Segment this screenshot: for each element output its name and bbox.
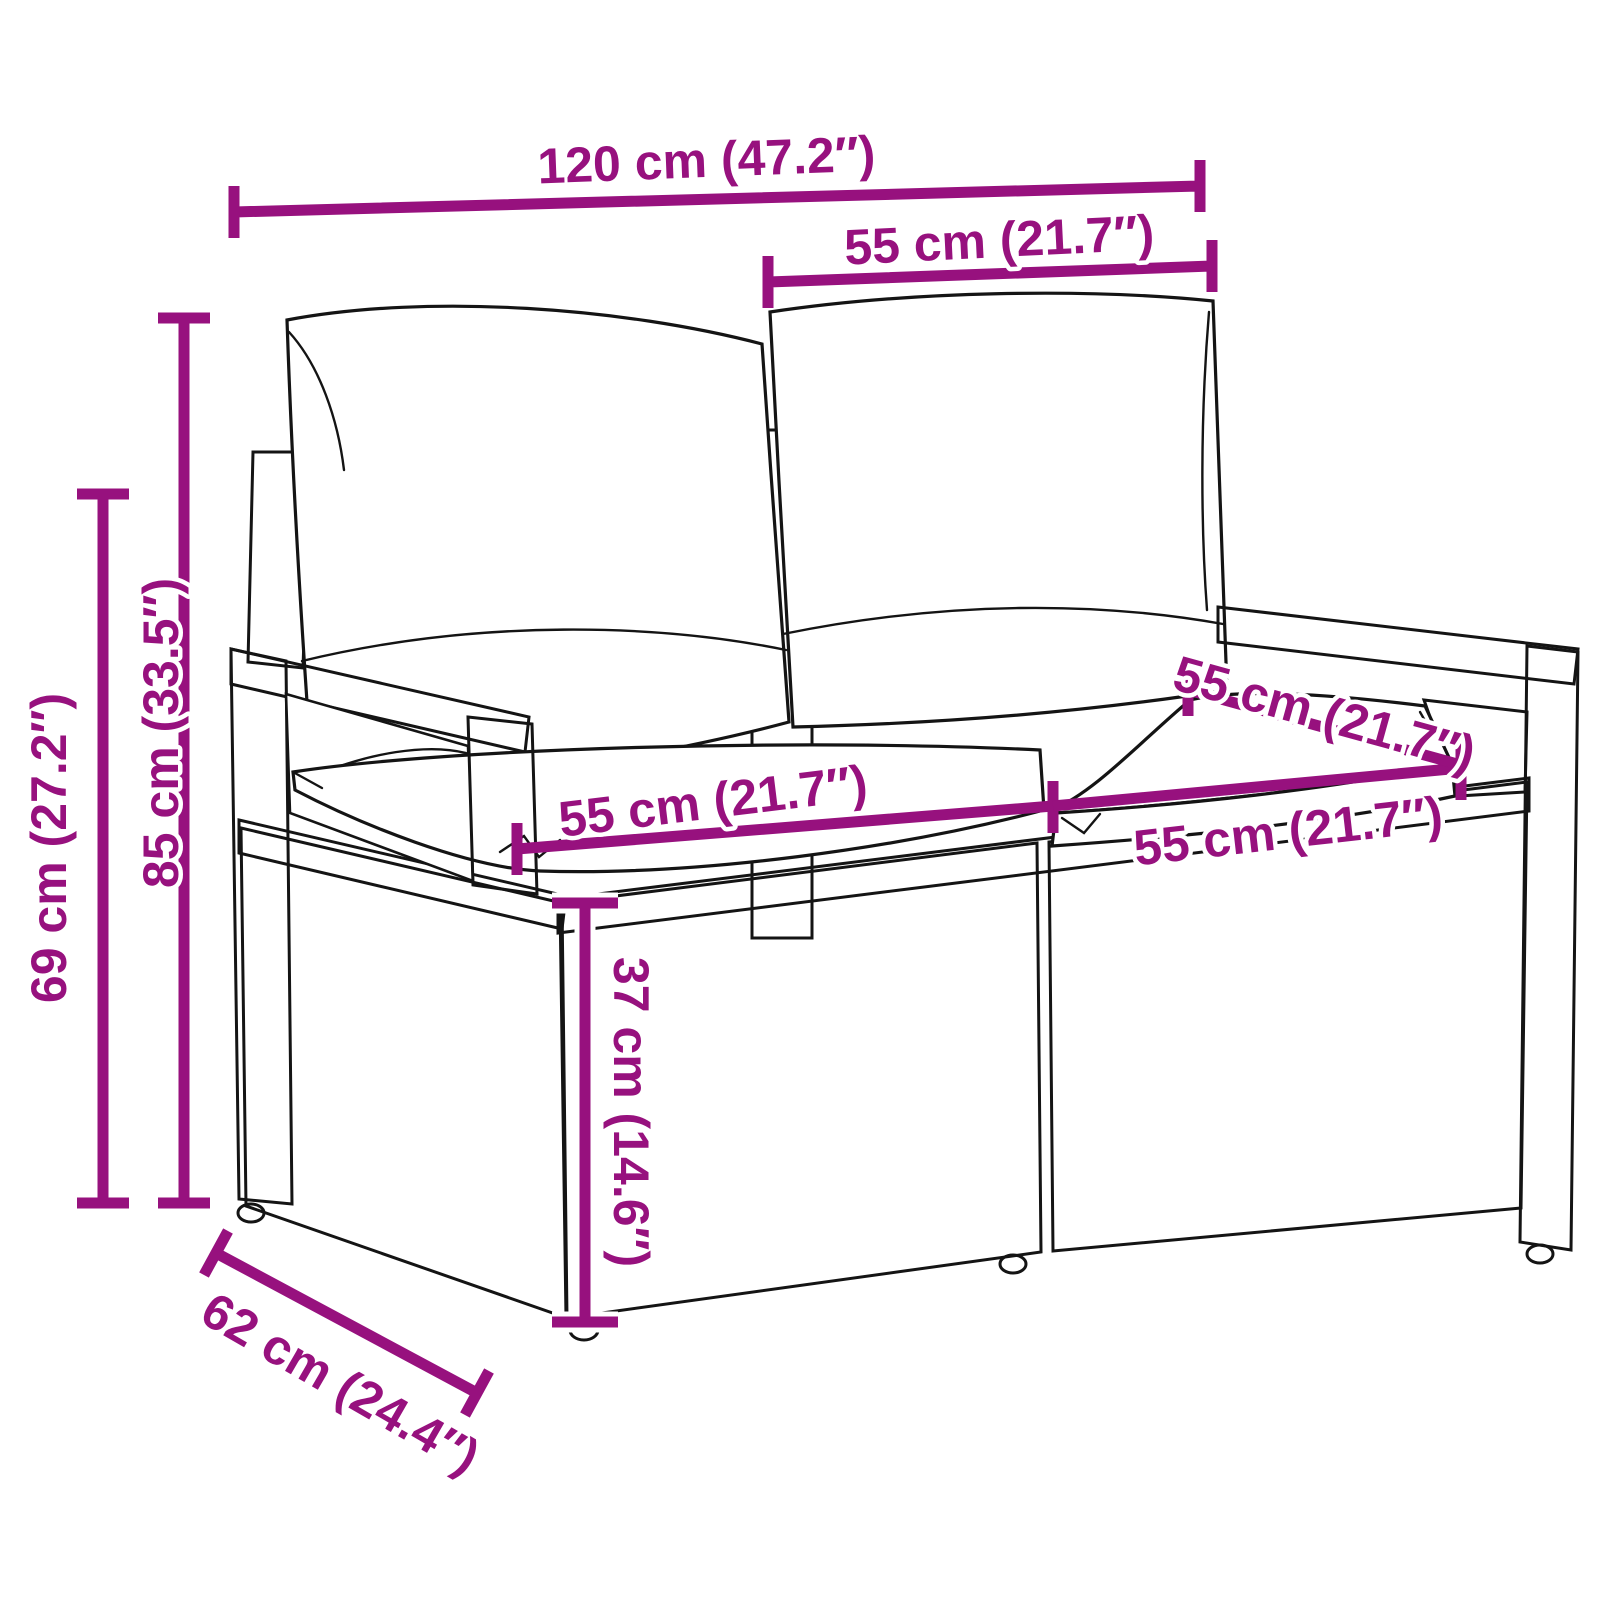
dimension-diagram-svg: 120 cm (47.2″) 55 cm (21.7″) 85 cm (33.5… — [0, 0, 1600, 1600]
armrest-height-label: 69 cm (27.2″) — [21, 693, 77, 1003]
dimension-diagram-page: 120 cm (47.2″) 55 cm (21.7″) 85 cm (33.5… — [0, 0, 1600, 1600]
seat-height-label: 37 cm (14.6″) — [603, 957, 659, 1267]
back-cushion-right — [770, 293, 1227, 727]
total-height-label: 85 cm (33.5″) — [133, 578, 189, 888]
